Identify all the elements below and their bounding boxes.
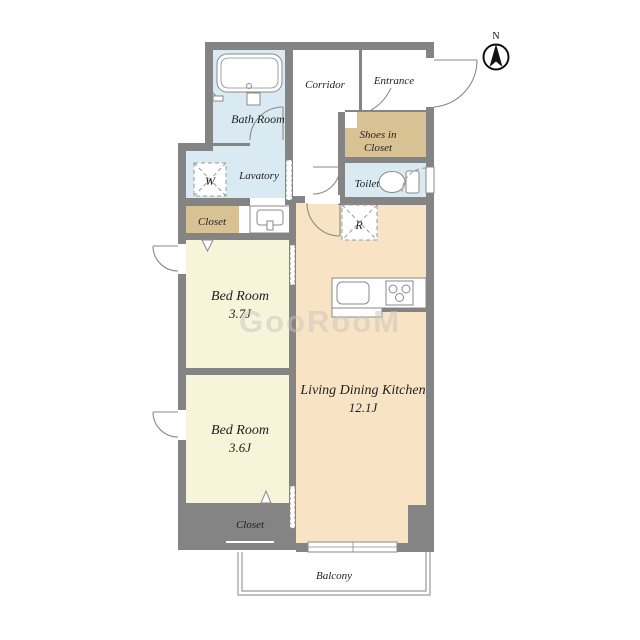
bedroom2-name: Bed Room: [211, 423, 269, 438]
entrance-door-gap: [426, 58, 434, 107]
wall-closet-bedroom1: [178, 233, 296, 240]
wall-left-upper: [205, 42, 213, 145]
corridor-label: Corridor: [305, 79, 345, 91]
floor-plan: Bath Room Corridor Entrance Shoes in Clo…: [0, 0, 640, 640]
bath-counter: [247, 93, 260, 105]
wall-corridor-entrance: [359, 50, 362, 112]
wall-shoes-toilet-divider: [338, 157, 434, 163]
entrance-label: Entrance: [373, 75, 414, 87]
wall-ldk-notch: [408, 505, 434, 552]
shoes-closet-label-line2: Closet: [364, 142, 393, 154]
wall-right-main: [426, 42, 434, 552]
ldk-name: Living Dining Kitchen: [299, 383, 425, 398]
wall-bath-lavatory-divider: [213, 143, 250, 146]
wall-lavatory-closet: [178, 198, 250, 206]
bedroom1-name: Bed Room: [211, 289, 269, 304]
bath-label: Bath Room: [231, 112, 285, 126]
shower-head-icon: [213, 96, 223, 101]
lower-closet-label: Closet: [236, 519, 265, 531]
ldk-floor: [296, 203, 426, 543]
wall-bedroom-divider: [178, 368, 296, 375]
north-label: N: [492, 31, 499, 42]
toilet-bowl: [379, 172, 405, 193]
lower-closet-gap: [226, 541, 274, 543]
bedroom2-floor: [186, 375, 289, 503]
lavatory-label: Lavatory: [238, 170, 279, 182]
ldk-door-gap: [305, 195, 340, 204]
ldk-size: 12.1J: [349, 400, 379, 415]
stove-burner: [402, 285, 410, 293]
bedroom2-sliding-door: [290, 486, 295, 528]
washer-label: W: [205, 174, 216, 188]
wall-entrance-shoes-divider: [345, 110, 426, 112]
wall-toilet-ldk: [338, 197, 434, 205]
balcony-label: Balcony: [316, 570, 352, 582]
toilet-label: Toilet: [355, 178, 381, 190]
stove-burner: [396, 294, 404, 302]
bedroom1-window-gap: [177, 244, 186, 274]
bedroom1-window-arc: [153, 246, 178, 271]
stove-burner: [389, 285, 397, 293]
lavatory-sliding-door: [286, 160, 292, 200]
bedroom2-window-arc: [153, 412, 178, 437]
floor-plan-canvas: Bath Room Corridor Entrance Shoes in Clo…: [0, 0, 640, 640]
bedroom1-sliding-door: [290, 245, 295, 285]
fridge-label: R: [354, 218, 363, 232]
toilet-tank: [406, 171, 419, 193]
bathtub: [217, 54, 282, 92]
vanity-tap: [267, 221, 273, 230]
bedroom2-size: 3.6J: [228, 440, 252, 455]
bedroom2-window-gap: [177, 410, 186, 440]
entrance-leader-line: [371, 88, 391, 110]
entrance-door-arc: [434, 60, 477, 107]
kitchen-sink: [337, 282, 369, 304]
shoes-closet-label-line1: Shoes in: [360, 129, 397, 141]
watermark-text: GooRooM: [239, 304, 401, 339]
upper-closet-label: Closet: [198, 216, 227, 228]
north-compass: N: [484, 31, 509, 70]
wall-top: [205, 42, 434, 50]
toilet-window: [426, 167, 434, 193]
toilet-door-arc: [313, 167, 340, 194]
